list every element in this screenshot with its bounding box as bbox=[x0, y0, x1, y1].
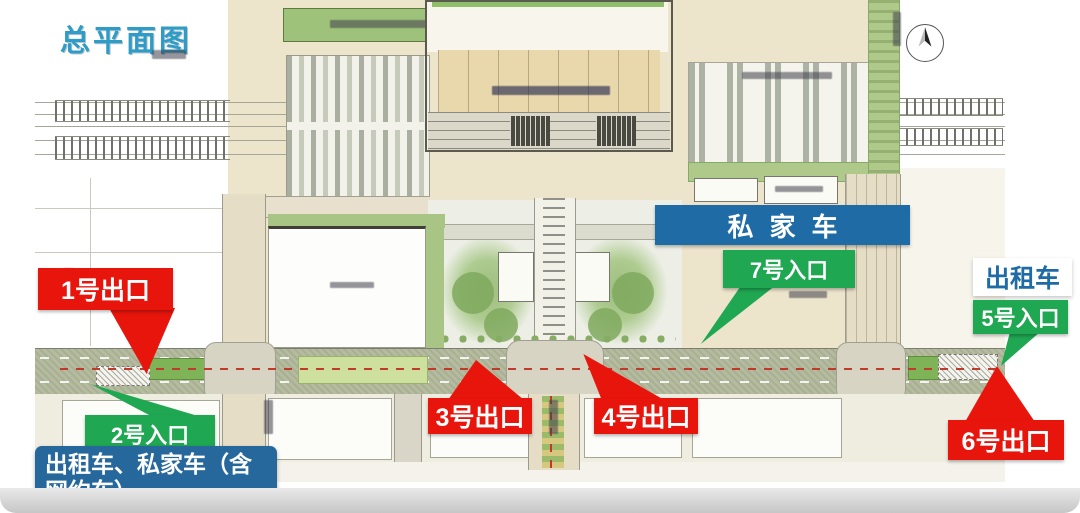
road-median bbox=[298, 356, 428, 384]
illegible-small-text bbox=[742, 72, 832, 79]
illegible-small-text bbox=[330, 282, 374, 288]
vertical-road-narrow bbox=[394, 394, 422, 462]
taxi-zone-label: 出租车 bbox=[973, 258, 1072, 296]
site-plan-image: 私家车 出租车 7号入口 5号入口 1号出口 2号入口 3号出口 4号出口 6号… bbox=[0, 0, 1080, 513]
parcel-line bbox=[90, 178, 91, 346]
parking-field-left bbox=[286, 55, 430, 207]
parking-aisle bbox=[287, 122, 427, 130]
tree-cluster bbox=[452, 272, 494, 314]
parcel-line bbox=[35, 208, 222, 209]
intersection bbox=[204, 342, 276, 402]
rail-platform-hatch bbox=[898, 128, 1003, 146]
entrance-5-label: 5号入口 bbox=[973, 300, 1068, 334]
route-line bbox=[60, 368, 1000, 370]
tree-cluster bbox=[612, 272, 654, 314]
service-building bbox=[694, 178, 758, 202]
illegible-road-name-vertical bbox=[264, 400, 273, 434]
parcel-green-edge bbox=[424, 228, 444, 348]
image-bottom-edge bbox=[0, 488, 1080, 513]
central-axis-ladder bbox=[543, 198, 565, 348]
taxi-queue-hatch bbox=[938, 354, 998, 380]
intersection bbox=[836, 342, 906, 402]
illegible-small-text bbox=[775, 186, 823, 192]
south-parcel bbox=[692, 398, 842, 458]
private-car-zone-label: 私家车 bbox=[655, 205, 910, 245]
parcel-line bbox=[35, 252, 222, 253]
entrance-7-label: 7号入口 bbox=[723, 250, 855, 288]
rail-platform-hatch bbox=[55, 100, 230, 122]
compass-needle bbox=[907, 25, 943, 61]
illegible-small-text bbox=[152, 50, 186, 59]
exit-1-label: 1号出口 bbox=[38, 268, 173, 310]
exit-3-label: 3号出口 bbox=[428, 398, 532, 434]
illegible-small-text bbox=[789, 291, 827, 298]
illegible-road-name-vertical bbox=[549, 400, 558, 434]
compass-rose-icon bbox=[906, 24, 944, 62]
south-parcel bbox=[268, 398, 392, 460]
illegible-small-text bbox=[893, 12, 901, 46]
rail-platform-hatch bbox=[55, 136, 230, 160]
rail-line bbox=[35, 126, 302, 127]
station-outline bbox=[425, 0, 673, 152]
plaza-pavilion bbox=[574, 252, 610, 302]
rail-platform-hatch bbox=[898, 98, 1003, 116]
exit-6-label: 6号出口 bbox=[948, 420, 1064, 460]
exit-4-label: 4号出口 bbox=[594, 398, 698, 434]
plaza-pavilion bbox=[498, 252, 534, 302]
